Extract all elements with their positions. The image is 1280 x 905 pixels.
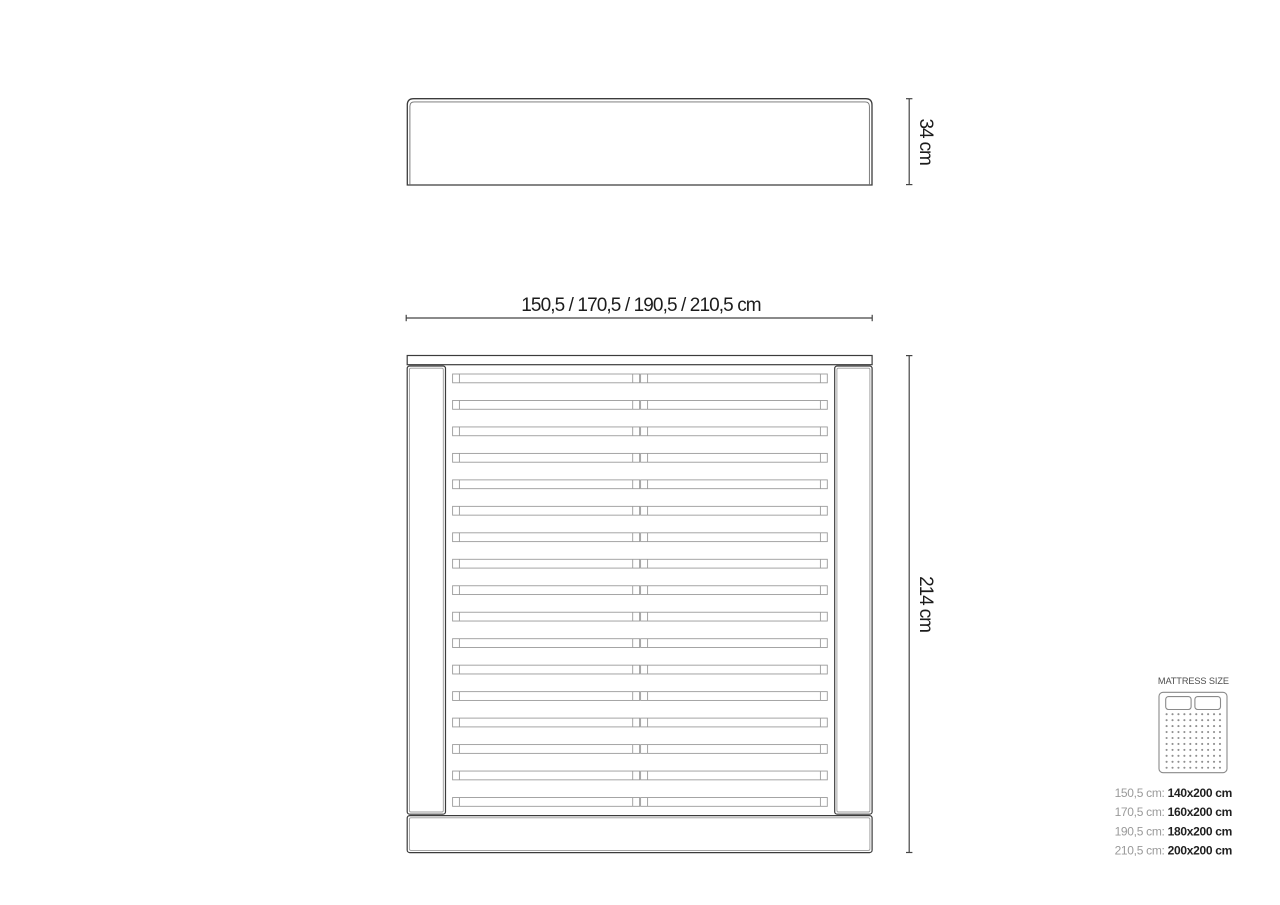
svg-text:170,5 cm: 160x200 cm: 170,5 cm: 160x200 cm — [1115, 805, 1232, 819]
svg-text:MATTRESS SIZE: MATTRESS SIZE — [1158, 676, 1229, 686]
svg-text:214 cm: 214 cm — [915, 576, 936, 632]
svg-text:190,5 cm: 180x200 cm: 190,5 cm: 180x200 cm — [1115, 824, 1232, 838]
svg-text:34 cm: 34 cm — [915, 118, 936, 165]
svg-text:150,5 cm: 140x200 cm: 150,5 cm: 140x200 cm — [1115, 786, 1232, 800]
svg-text:210,5 cm: 200x200 cm: 210,5 cm: 200x200 cm — [1115, 844, 1232, 858]
svg-text:150,5 / 170,5 / 190,5 / 210,5: 150,5 / 170,5 / 190,5 / 210,5 cm — [521, 295, 761, 316]
